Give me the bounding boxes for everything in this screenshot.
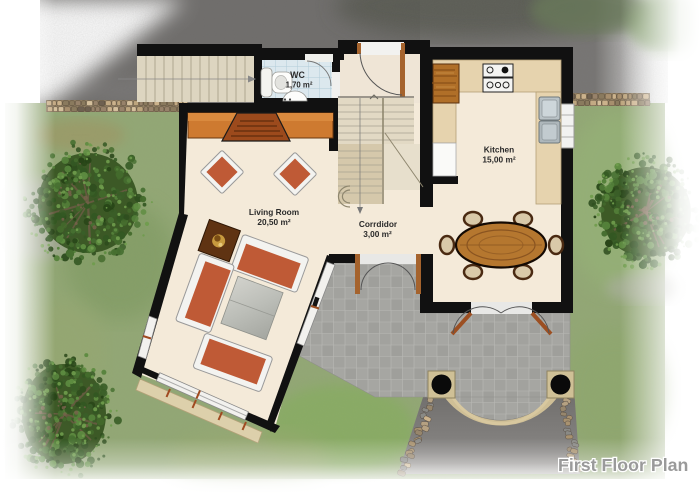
svg-text:15,00 m²: 15,00 m² <box>482 155 515 165</box>
svg-text:20,50 m²: 20,50 m² <box>257 217 290 227</box>
svg-text:Kitchen: Kitchen <box>484 145 514 155</box>
svg-text:Corrdidor: Corrdidor <box>359 219 398 229</box>
svg-text:First Floor Plan: First Floor Plan <box>558 455 688 475</box>
svg-text:WC: WC <box>290 70 305 80</box>
svg-text:3,00 m²: 3,00 m² <box>363 229 392 239</box>
svg-text:1,70 m²: 1,70 m² <box>286 81 313 90</box>
svg-text:Living Room: Living Room <box>249 207 299 217</box>
